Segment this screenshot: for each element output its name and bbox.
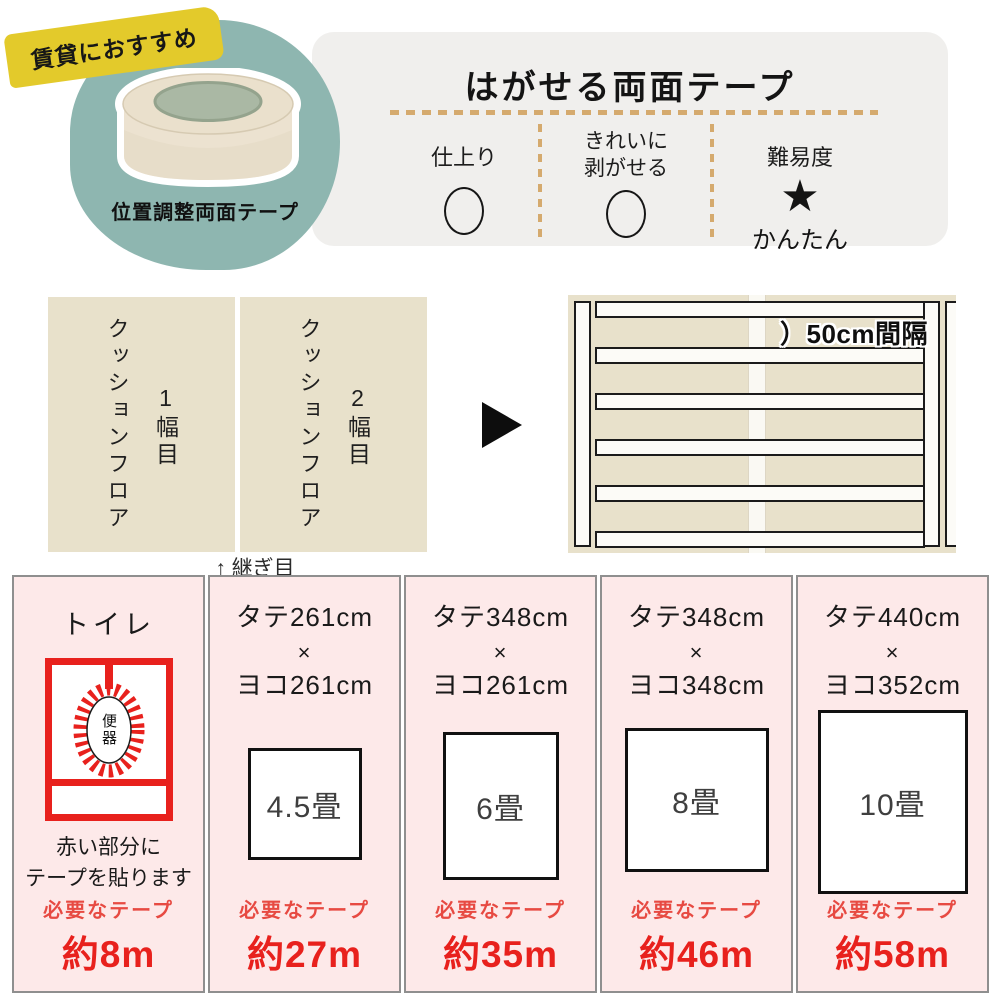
toilet-note-line1: 赤い部分に	[56, 836, 161, 859]
multiply-sign: ×	[298, 640, 312, 665]
feature-finish-label: 仕上り	[431, 140, 497, 172]
room-length: タテ348cm	[628, 602, 765, 632]
fixture-label-wrap: 便器	[65, 675, 153, 785]
tape-needed-amount: 約27m	[247, 924, 362, 978]
strip-2-name: クッションフロア	[293, 317, 325, 552]
room-width: ヨコ261cm	[236, 670, 373, 700]
toilet-note: 赤い部分に テープを貼ります	[25, 833, 192, 894]
arrow-right-icon	[482, 402, 522, 448]
requirement-col-8jo: タテ348cm × ヨコ348cm 8畳 必要なテープ 約46m	[600, 575, 793, 993]
requirement-col-4-5jo: タテ261cm × ヨコ261cm 4.5畳 必要なテープ 約27m	[208, 575, 401, 993]
requirement-col-toilet: トイレ 便器 赤い部分に テープを貼ります 必要なテープ 約8m	[12, 575, 205, 993]
room-dimensions: タテ261cm × ヨコ261cm	[236, 601, 373, 702]
requirement-col-10jo: タテ440cm × ヨコ352cm 10畳 必要なテープ 約58m	[796, 575, 989, 993]
cushion-floor-strip-2: クッションフロア 2幅目	[240, 297, 427, 552]
tape-needed-label: 必要なテープ	[631, 894, 762, 923]
room-size-label: 8畳	[672, 778, 721, 822]
tape-needed-amount: 約8m	[62, 924, 155, 978]
multiply-sign: ×	[886, 640, 900, 665]
product-name-label: 位置調整両面テープ	[92, 196, 318, 225]
cushion-floor-strip-1: クッションフロア 1幅目	[48, 297, 235, 552]
spec-panel-title: はがせる両面テープ	[312, 60, 948, 109]
tape-strip-horizontal	[595, 485, 925, 502]
room-length: タテ348cm	[432, 602, 569, 632]
room-size-label: 10畳	[859, 780, 925, 824]
room-dimensions: タテ348cm × ヨコ261cm	[432, 601, 569, 702]
fixture-label: 便器	[98, 713, 119, 747]
multiply-sign: ×	[690, 640, 704, 665]
tape-strip-horizontal	[595, 393, 925, 410]
circle-rating-icon	[444, 187, 484, 235]
feature-removable-label-line2: 剥がせる	[584, 157, 668, 180]
room-width: ヨコ348cm	[628, 670, 765, 700]
room-size-label: 4.5畳	[267, 782, 343, 826]
seam-strip	[748, 295, 766, 553]
room-length: タテ261cm	[236, 602, 373, 632]
tape-needed-amount: 約58m	[835, 924, 950, 978]
room-size-label: 6畳	[476, 784, 525, 828]
difficulty-caption: かんたん	[752, 220, 848, 255]
tape-roll-image	[106, 68, 310, 203]
tape-needed-label: 必要なテープ	[43, 894, 174, 923]
strip-1-order: 1幅目	[149, 385, 183, 552]
infographic-canvas: はがせる両面テープ 仕上り きれいに 剥がせる 難易度 ★ かんたん	[0, 0, 1000, 1000]
room-outline: 10畳	[818, 710, 968, 894]
feature-finish: 仕上り	[390, 124, 538, 235]
tape-needed-amount: 約35m	[443, 924, 558, 978]
spec-panel: はがせる両面テープ 仕上り きれいに 剥がせる 難易度 ★ かんたん	[312, 32, 948, 246]
room-dimensions: タテ440cm × ヨコ352cm	[824, 601, 961, 702]
room-length: タテ440cm	[824, 602, 961, 632]
feature-difficulty-label: 難易度	[767, 140, 833, 172]
horizontal-dashed-divider	[390, 110, 878, 115]
feature-removable-label-line1: きれいに	[584, 130, 668, 153]
toilet-note-line2: テープを貼ります	[25, 867, 192, 890]
room-outline: 8畳	[625, 728, 769, 872]
tape-strip-vertical	[945, 301, 956, 547]
tape-strip-horizontal	[595, 531, 925, 548]
circle-rating-icon	[606, 190, 646, 238]
toilet-title: トイレ	[62, 603, 155, 642]
feature-removable-label: きれいに 剥がせる	[584, 128, 668, 183]
tape-requirement-row: トイレ 便器 赤い部分に テープを貼ります 必要なテープ 約8m	[12, 575, 989, 993]
feature-difficulty: 難易度 ★ かんたん	[714, 124, 886, 255]
tape-needed-label: 必要なテープ	[239, 894, 370, 923]
requirement-col-6jo: タテ348cm × ヨコ261cm 6畳 必要なテープ 約35m	[404, 575, 597, 993]
tape-roll-illustration	[106, 68, 310, 198]
tape-strip-horizontal	[595, 439, 925, 456]
tape-needed-label: 必要なテープ	[827, 894, 958, 923]
tape-needed-amount: 約46m	[639, 924, 754, 978]
tape-needed-label: 必要なテープ	[435, 894, 566, 923]
strip-2-order: 2幅目	[341, 385, 375, 552]
room-outline: 4.5畳	[248, 748, 362, 860]
room-dimensions: タテ348cm × ヨコ348cm	[628, 601, 765, 702]
spacing-label: ）50cm間隔	[780, 314, 928, 351]
toilet-floorplan: 便器	[45, 658, 173, 821]
room-width: ヨコ352cm	[824, 670, 961, 700]
strip-1-name: クッションフロア	[101, 317, 133, 552]
multiply-sign: ×	[494, 640, 508, 665]
room-outline: 6畳	[443, 732, 559, 880]
star-rating-icon: ★	[780, 174, 819, 220]
floor-tape-diagram: ）50cm間隔	[568, 295, 956, 553]
room-width: ヨコ261cm	[432, 670, 569, 700]
tape-strip-vertical	[574, 301, 591, 547]
feature-removable: きれいに 剥がせる	[542, 124, 710, 238]
toilet-tape-divider	[52, 779, 166, 786]
